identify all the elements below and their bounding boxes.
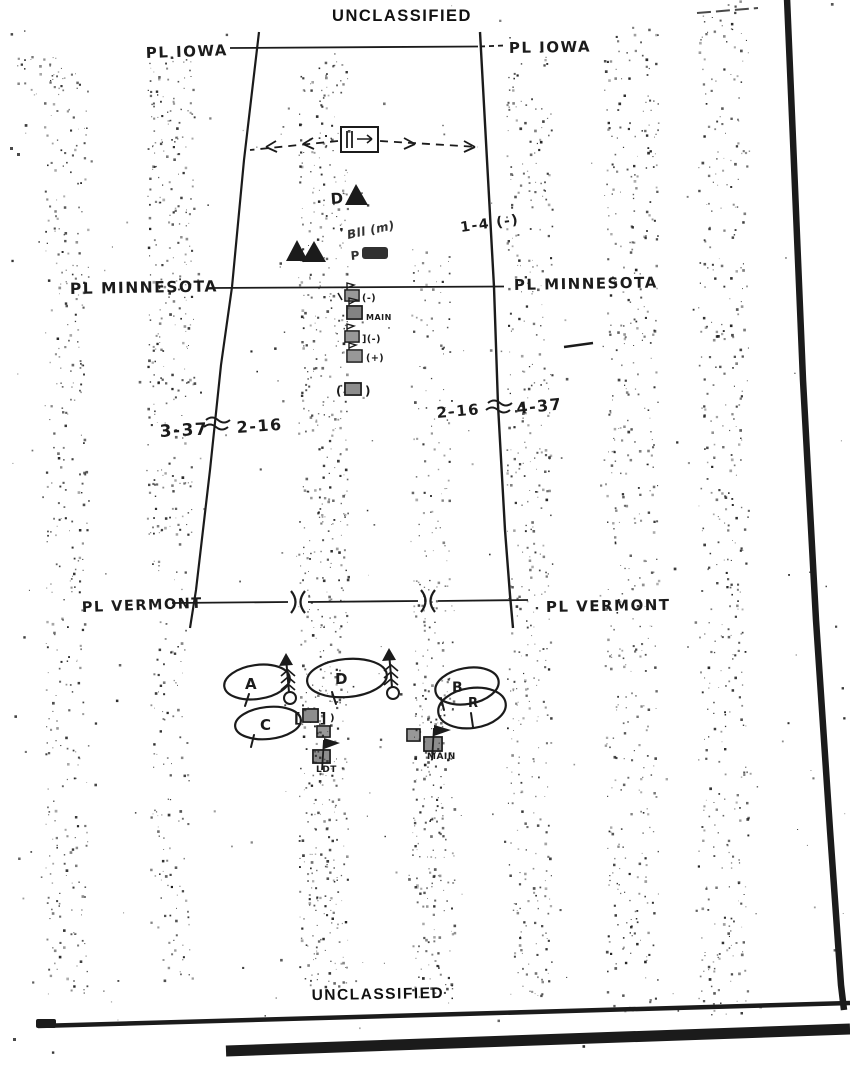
scan-noise xyxy=(11,0,846,1053)
phase-line-vermont-right-label: PL VERMONT xyxy=(546,596,671,616)
phase-line-vermont: PL VERMONT PL VERMONT xyxy=(82,590,671,616)
unit-2-16: 2-16 xyxy=(236,415,283,437)
classification-banner-top: UNCLASSIFIED xyxy=(332,7,472,25)
lane-arrow xyxy=(279,653,296,704)
cp-symbol-bracketed: ( ) xyxy=(336,383,371,398)
boundary-line-east xyxy=(480,32,513,628)
bottom-cp-cluster: [ ] ) LDT MAIN xyxy=(294,709,456,775)
scan-artifacts xyxy=(10,0,850,1051)
cp-flag-symbol-main: MAIN xyxy=(407,725,456,762)
svg-text:MAIN: MAIN xyxy=(427,752,456,762)
lane-arrow xyxy=(382,648,399,699)
svg-text:P: P xyxy=(350,248,360,263)
op-triangle-icon xyxy=(302,241,326,262)
cp-symbol: (+) xyxy=(347,343,384,364)
svg-text:R: R xyxy=(468,696,480,711)
top-right-dash xyxy=(697,8,758,13)
svg-text:D: D xyxy=(335,670,349,688)
classification-banner-bottom: UNCLASSIFIED xyxy=(312,985,445,1004)
phase-line-iowa-right-label: PL IOWA xyxy=(509,38,591,57)
observation-post-pair xyxy=(286,240,326,262)
observation-post-d: D xyxy=(330,184,368,208)
phase-line-iowa-left-label: PL IOWA xyxy=(146,41,229,62)
svg-text:D: D xyxy=(330,189,344,208)
stray-pen-mark xyxy=(564,343,593,347)
unit-4-37: 4-37 xyxy=(515,394,563,418)
boundary-line-west xyxy=(190,32,259,628)
boundary-label-west: 3-37 2-16 xyxy=(159,415,283,442)
svg-text:A: A xyxy=(245,675,258,693)
cp-symbol: ](-) xyxy=(345,324,381,345)
svg-text:]: ] xyxy=(320,711,327,727)
line-break-symbol xyxy=(291,591,305,613)
op-triangle-icon xyxy=(345,184,368,205)
svg-text:): ) xyxy=(330,713,335,724)
phase-line-vermont-left-label: PL VERMONT xyxy=(82,596,203,616)
svg-text:Bll (m): Bll (m) xyxy=(346,218,396,242)
assembly-areas: A D B C R xyxy=(222,656,508,747)
page-edge-line-bottom-thick xyxy=(226,1029,850,1051)
phase-line-minnesota-left-label: PL MINNESOTA xyxy=(70,277,218,298)
svg-text:[: [ xyxy=(294,711,301,727)
svg-text:(+): (+) xyxy=(366,353,384,364)
screen-line-symbol xyxy=(250,127,478,152)
phase-line-minnesota-right-label: PL MINNESOTA xyxy=(514,273,658,294)
cp-column: (-) MAIN ](-) (+) ( ) xyxy=(336,283,392,398)
phase-line-iowa: PL IOWA PL IOWA xyxy=(146,38,592,62)
ink-blob xyxy=(36,1019,56,1028)
west-flank-arrowheads xyxy=(266,138,314,152)
svg-text:(: ( xyxy=(336,384,342,398)
svg-text:LDT: LDT xyxy=(316,765,337,775)
unit-3-37: 3-37 xyxy=(159,419,209,442)
svg-text:): ) xyxy=(365,384,371,398)
ink-blob xyxy=(362,247,388,259)
svg-text:C: C xyxy=(260,716,273,734)
svg-text:(-): (-) xyxy=(362,293,376,304)
svg-text:](-): ](-) xyxy=(362,334,381,345)
scanned-page: UNCLASSIFIED UNCLASSIFIED PL IOWA PL IOW… xyxy=(0,0,850,1067)
center-unit-scribble: Bll (m) P xyxy=(346,218,396,263)
line-break-symbol xyxy=(421,590,435,612)
page-edge-line-bottom-thin xyxy=(38,1003,850,1026)
svg-text:MAIN: MAIN xyxy=(366,313,392,322)
page-edge-line-right xyxy=(787,0,844,1010)
unit-2-16: 2-16 xyxy=(436,400,481,422)
